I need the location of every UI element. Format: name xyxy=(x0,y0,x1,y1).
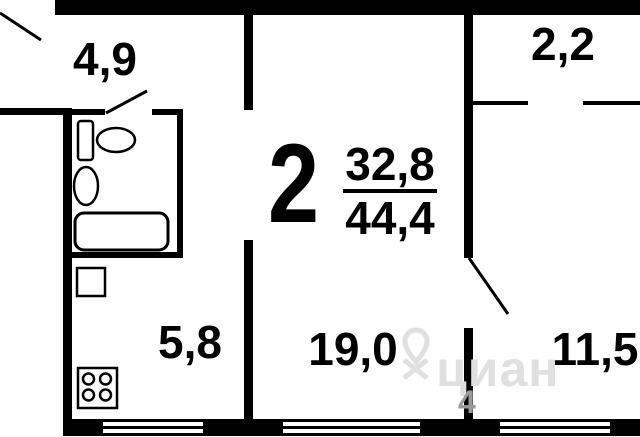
stove xyxy=(78,368,117,408)
area-fraction: 32,8 44,4 xyxy=(341,141,439,241)
wall-hall-living-top xyxy=(244,13,253,110)
wall-kitchen-living xyxy=(244,240,253,419)
wall-hall-left xyxy=(0,108,72,115)
wall-bathroom-bottom xyxy=(72,252,183,258)
stove-burner xyxy=(100,374,111,385)
watermark-pin-icon xyxy=(404,330,427,378)
wall-top xyxy=(55,0,640,15)
room-label-living: 19,0 xyxy=(308,326,398,372)
wall-bathroom-right xyxy=(177,109,183,258)
washbasin xyxy=(78,121,93,160)
floor-plan: 4,9 2,2 5,8 19,0 11,5 2 32,8 44,4 циан 4 xyxy=(0,0,640,437)
room-label-kitchen: 5,8 xyxy=(158,319,222,365)
room-label-bedroom: 11,5 xyxy=(552,326,639,372)
wall-left xyxy=(63,108,72,419)
wall-living-bedroom-top xyxy=(464,13,473,258)
toilet-bowl xyxy=(74,167,98,205)
bathtub xyxy=(75,213,168,250)
room-label-hallway: 4,9 xyxy=(73,36,137,82)
stove-burner xyxy=(100,390,111,401)
bathroom-door xyxy=(106,91,147,113)
watermark-brand: циан xyxy=(436,344,559,394)
living-area: 32,8 xyxy=(345,141,435,187)
total-area: 44,4 xyxy=(345,195,435,241)
toilet-tank xyxy=(97,128,135,152)
stove-burner xyxy=(83,374,94,385)
kitchen-fixtures xyxy=(77,268,117,408)
wall-closet-right xyxy=(583,101,640,105)
bathroom-fixtures xyxy=(74,121,168,250)
rooms-count: 2 xyxy=(268,128,319,240)
wall-closet-left xyxy=(473,101,528,105)
wall-bottom xyxy=(63,419,640,436)
kitchen-sink xyxy=(77,268,105,296)
wall-bathroom-top-left xyxy=(72,109,105,115)
bedroom-door xyxy=(469,258,508,314)
stove-burner xyxy=(83,390,94,401)
watermark-digit: 4 xyxy=(458,386,476,418)
room-label-closet: 2,2 xyxy=(531,21,595,67)
entrance-door xyxy=(0,13,41,40)
